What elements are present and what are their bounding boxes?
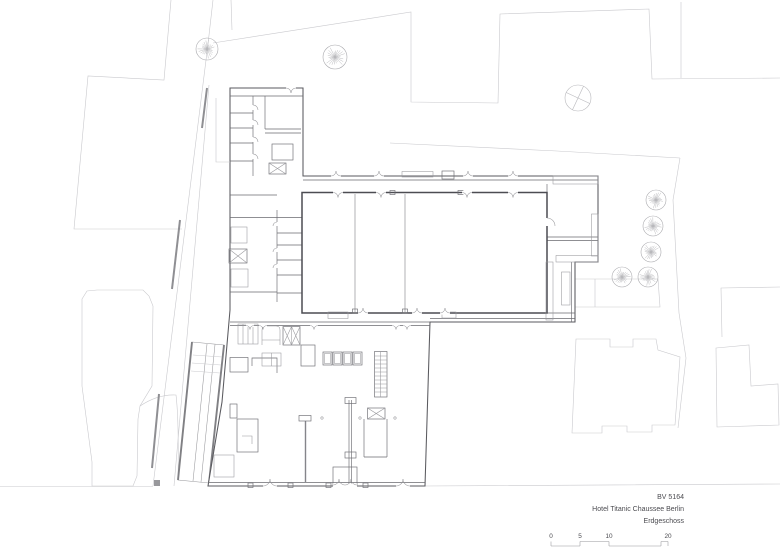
tree-symbol [323,45,347,69]
scale-label: 5 [578,533,582,540]
project-number: BV 5164 [657,494,684,501]
street-curb-outer [153,0,213,486]
context-parcel-top-left [74,0,182,229]
tree-symbol [638,267,658,287]
street-retaining-walls [152,88,207,468]
tree-symbol [643,216,663,236]
scale-bar-labels: 051020 [549,533,672,540]
tree-symbol [641,242,661,262]
context-lines-right-edge [721,287,780,337]
scale-bar-graphic [551,542,668,547]
tree-symbol [612,267,632,287]
crossed-circle-symbol [565,85,591,111]
drawing-sheet: BV 5164 Hotel Titanic Chaussee Berlin Er… [0,0,780,552]
scale-label: 10 [605,533,613,540]
floor-plan-canvas: BV 5164 Hotel Titanic Chaussee Berlin Er… [0,0,780,552]
tree-symbol [646,190,666,210]
tree-symbol [196,38,218,60]
scale-label: 0 [549,533,553,540]
context-stub-top [231,0,232,30]
scale-label: 20 [664,533,672,540]
project-name: Hotel Titanic Chaussee Berlin [592,506,684,513]
main-building [208,88,598,488]
sheet-name: Erdgeschoss [644,518,685,525]
context-boundary-right [673,158,686,428]
lightwell-west [216,98,230,162]
scale-bar: 051020 [549,533,672,546]
title-block: BV 5164 Hotel Titanic Chaussee Berlin Er… [592,494,684,525]
context-building-bottom-right [572,339,680,433]
street-edges [152,0,213,486]
context-fence-line [390,143,680,158]
street-wall-block [154,480,160,486]
building-outline [208,88,598,486]
context-building-far-right [716,345,779,427]
street-curb-inner [174,85,209,486]
context-building-left [82,290,153,486]
